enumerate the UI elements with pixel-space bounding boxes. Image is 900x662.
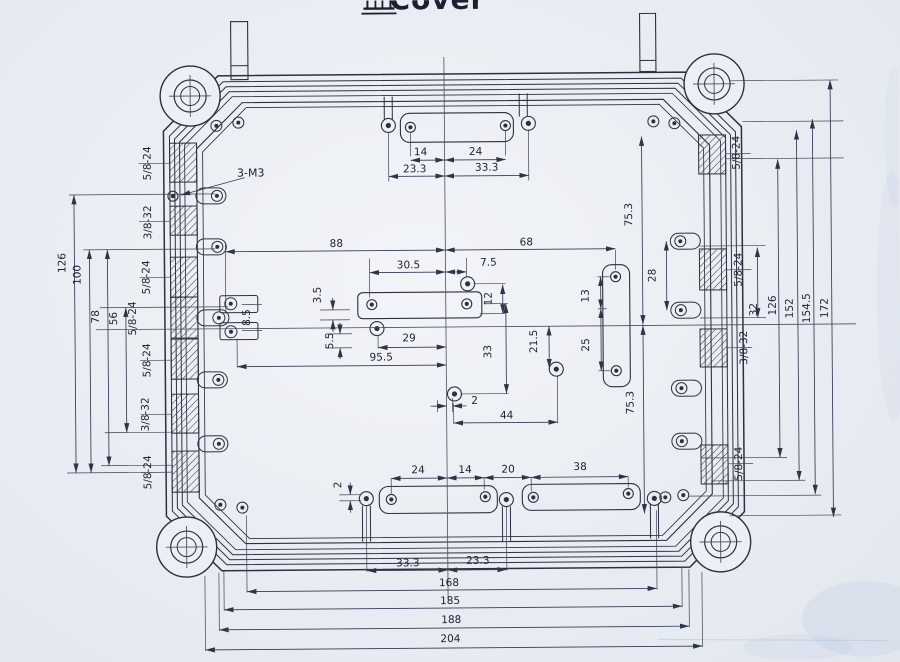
- dimension-label: 204: [440, 633, 460, 645]
- round-boss-center: [374, 326, 379, 331]
- bracket-stub-hole-center: [217, 316, 221, 320]
- stub-boss-hole-center: [679, 386, 683, 390]
- dimension-label: 185: [440, 595, 460, 607]
- screw-hole-center: [613, 275, 617, 279]
- thread-callout-left: 5/8-24: [141, 343, 153, 377]
- dimension-label: 14: [458, 464, 472, 476]
- witness-line: [689, 495, 821, 496]
- dimension-label: 33: [482, 345, 494, 358]
- dimension-line: [445, 175, 529, 176]
- witness-line: [225, 245, 226, 314]
- dimension-label: 20: [501, 463, 514, 475]
- screw-hole-center: [531, 495, 535, 499]
- dimension-label: 33.3: [396, 557, 419, 569]
- witness-line: [726, 158, 844, 159]
- stub-boss-hole-center: [216, 378, 220, 382]
- witness-line: [702, 572, 703, 647]
- cover-outline: [196, 99, 712, 544]
- dimension-label: 5.5: [324, 333, 336, 350]
- witness-line: [69, 194, 215, 195]
- stub-boss: [197, 372, 227, 388]
- cover-outline: [174, 83, 734, 560]
- dimension-line: [205, 646, 702, 650]
- dimension-line: [643, 325, 644, 513]
- knockout-hatch: [699, 249, 726, 290]
- dimension-label: 28: [647, 269, 659, 282]
- dimension-label: 100: [71, 265, 83, 285]
- screw-hole-center: [389, 497, 393, 501]
- round-boss-center: [386, 123, 391, 128]
- dimension-label: 126: [767, 295, 779, 315]
- dimension-label: 168: [439, 577, 459, 589]
- dimension-label: 56: [108, 312, 120, 326]
- corner-bolt-hole-center: [651, 119, 655, 123]
- corner-bolt-hole-center: [236, 121, 240, 125]
- round-boss-center: [526, 121, 531, 126]
- stub-boss-hole-center: [215, 194, 219, 198]
- screw-hole-center: [408, 125, 412, 129]
- stub-boss-hole-center: [217, 442, 221, 446]
- round-boss-center: [504, 497, 509, 502]
- witness-line: [699, 246, 765, 247]
- dimension-label: 30.5: [397, 259, 420, 271]
- dimension-label: 44: [500, 410, 514, 422]
- knockout-hatch: [698, 135, 725, 174]
- corner-bolt-hole-center: [672, 121, 676, 125]
- slot-plate: [400, 112, 513, 142]
- round-boss-center: [452, 391, 457, 396]
- witness-line: [506, 507, 507, 571]
- witness-line: [729, 515, 841, 516]
- witness-line: [742, 121, 843, 122]
- round-boss-center: [554, 367, 559, 372]
- corner-bolt-hole-center: [214, 124, 218, 128]
- dimension-line: [225, 250, 445, 252]
- dimension-label: 78: [90, 310, 102, 323]
- thread-callout-right: 3/8-32: [738, 331, 750, 365]
- screw-hole-center: [503, 123, 507, 127]
- dimension-line: [506, 304, 507, 394]
- bracket-tab-hole-center: [229, 330, 233, 334]
- thread-callout-left: 5/8-24: [140, 260, 152, 294]
- dimension-label: 75.3: [623, 203, 635, 226]
- dimension-label: 32: [748, 303, 760, 316]
- slot-plate: [379, 486, 497, 514]
- dimension-line: [89, 250, 91, 473]
- dimension-label: 154.5: [801, 293, 813, 323]
- witness-line: [366, 506, 367, 572]
- stub-boss-hole-center: [679, 308, 683, 312]
- hinge-tab: [640, 13, 656, 71]
- dimension-label: 33.3: [475, 162, 498, 174]
- screw-hole-center: [483, 495, 487, 499]
- corner-bolt-hole-center: [240, 506, 244, 510]
- thread-callout-left: 3/8-32: [140, 397, 152, 431]
- dimension-label: 3.5: [312, 287, 324, 304]
- engineering-drawing-cover: 142423.333.3886830.57.53.51213288.55.529…: [0, 0, 900, 662]
- dimension-line: [666, 241, 667, 310]
- dimension-label: 24: [411, 464, 425, 476]
- thread-callout-right: 5/8-24: [730, 135, 742, 169]
- screw-hole-center: [171, 194, 175, 198]
- bracket-tab-hole-center: [229, 302, 233, 306]
- knockout-hatch: [700, 329, 727, 367]
- title-latin: Cover: [389, 0, 485, 16]
- dimension-label: 172: [819, 298, 831, 318]
- dimension-line: [219, 626, 689, 630]
- knockout-hatch: [170, 257, 197, 297]
- scan-artifacts: [653, 66, 900, 661]
- witness-line: [246, 516, 247, 593]
- dimension-label: 68: [520, 236, 533, 248]
- dimension-line: [237, 365, 446, 367]
- stub-boss-hole-center: [678, 239, 682, 243]
- dimension-label: 24: [469, 146, 483, 158]
- dimension-label: 95.5: [369, 351, 392, 363]
- knockout-hatch: [170, 206, 197, 235]
- round-boss-center: [364, 496, 369, 501]
- dimension-line: [370, 272, 446, 273]
- witness-line: [205, 576, 206, 651]
- scanned-drawing-page: 142423.333.3886830.57.53.51213288.55.529…: [0, 0, 900, 662]
- dimension-label: 23.3: [403, 163, 426, 175]
- witness-line: [83, 249, 215, 250]
- dimension-label: 38: [573, 461, 586, 473]
- stub-boss-hole-center: [215, 245, 219, 249]
- round-boss-center: [465, 281, 470, 286]
- dimension-label: 126: [56, 253, 68, 273]
- witness-line: [101, 465, 173, 466]
- dimension-line: [454, 422, 558, 423]
- knockout-hatch: [170, 143, 197, 182]
- corner-bolt-hole-center: [218, 503, 222, 507]
- dimension-label: 21.5: [528, 330, 540, 353]
- corner-bolt-hole-center: [663, 495, 667, 499]
- hinge-tab: [231, 22, 248, 80]
- thread-callout-left: 5/8-24: [142, 455, 154, 489]
- centerline: [444, 57, 448, 600]
- thread-note-3m3: 3-M3: [237, 166, 265, 179]
- cover-body-outline: [153, 13, 751, 578]
- dimension-label: 88: [330, 238, 343, 250]
- cover-outline: [179, 88, 729, 555]
- dimension-label: 152: [784, 298, 796, 318]
- dimension-label: 7.5: [480, 257, 497, 269]
- slot-plate: [522, 484, 640, 511]
- witness-line: [700, 318, 766, 319]
- cover-outline: [169, 78, 739, 565]
- thread-callout-left: 5/8-24: [127, 301, 139, 335]
- dimension-label: 188: [441, 614, 461, 626]
- witness-line: [105, 432, 173, 433]
- dimension-line: [445, 249, 615, 250]
- thread-callout-right: 5/8-24: [732, 252, 744, 286]
- thread-callout-left: 3/8-32: [142, 205, 154, 239]
- dimension-line: [378, 347, 446, 348]
- dimension-label: 2: [471, 395, 478, 407]
- dimension-label: 13: [580, 289, 592, 302]
- witness-line: [100, 307, 228, 308]
- drawing-title: Cover: [361, 0, 485, 17]
- dimension-label: 2: [332, 481, 344, 488]
- dimension-label: 12: [483, 292, 495, 305]
- centerline: [96, 324, 856, 330]
- dimension-label: 25: [580, 338, 592, 351]
- thread-callout-right: 5/8-24: [733, 446, 745, 480]
- dimension-line: [107, 250, 109, 466]
- knockout-hatch: [701, 445, 728, 484]
- corner-bolt-hole-center: [681, 493, 685, 497]
- thread-callout-left: 5/8-24: [142, 146, 154, 180]
- dimension-label: 75.3: [624, 391, 636, 414]
- stub-boss-hole-center: [680, 439, 684, 443]
- witness-line: [729, 80, 838, 81]
- knockout-hatch: [171, 339, 198, 379]
- screw-hole-center: [614, 369, 618, 373]
- dimension-label: 23.3: [466, 555, 489, 567]
- dimension-line: [531, 477, 628, 478]
- knockout-hatch: [171, 297, 198, 338]
- dimension-line: [74, 195, 76, 473]
- screw-hole-center: [465, 302, 469, 306]
- knockout-hatch: [171, 394, 198, 433]
- dimension-label: 29: [402, 332, 415, 344]
- witness-line: [656, 510, 657, 589]
- dimension-label: 14: [414, 146, 428, 158]
- dimension-label: 8.5: [241, 309, 253, 326]
- dimension-line: [641, 136, 642, 324]
- round-boss-center: [652, 496, 657, 501]
- screw-hole-center: [626, 491, 630, 495]
- knockout-hatch: [172, 451, 199, 492]
- dimension-line: [796, 130, 799, 480]
- cover-outline: [202, 104, 706, 539]
- screw-hole-center: [370, 302, 374, 306]
